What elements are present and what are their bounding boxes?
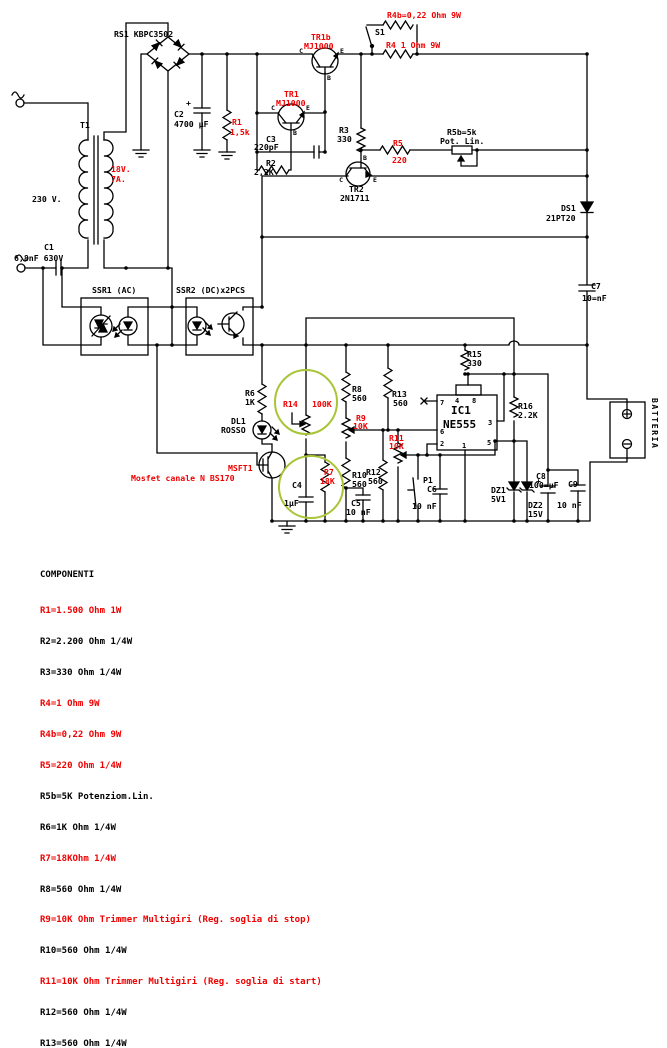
label-pin8: 8 (472, 397, 476, 405)
parts-list-line: R13=560 Ohm 1/4W (40, 1039, 660, 1048)
label-7a: 7A. (111, 174, 126, 184)
label-r6-value: 1K (245, 397, 255, 407)
label-batteria: BATTERIA (650, 398, 660, 449)
label-pin5: 5 (487, 439, 491, 447)
wire-network (24, 23, 627, 526)
label-tr1-type: MJ1000 (276, 98, 306, 108)
label-r16-value: 2.2K (518, 410, 538, 420)
label-ssr1: SSR1 (AC) (92, 285, 136, 295)
parts-list-line: R12=560 Ohm 1/4W (40, 1008, 660, 1018)
label-r13-value: 560 (393, 398, 408, 408)
label-ic1: IC1 (451, 404, 471, 417)
label-c9-value: 10 nF (557, 500, 582, 510)
label-pin1: 1 (462, 442, 466, 450)
label-tr2-type: 2N1711 (340, 193, 370, 203)
label-dz2-value: 15V (528, 509, 543, 519)
label-r9-value: 10K (353, 421, 368, 431)
transformer-t1 (79, 136, 113, 244)
parts-list-line: R11=10K Ohm Trimmer Multigiri (Reg. sogl… (40, 977, 660, 987)
label-r5b-type: Pot. Lin. (440, 136, 484, 146)
zener-dz1 (507, 482, 521, 492)
label-r4: R4 1 Ohm 9W (386, 40, 440, 50)
label-msft1-type: Mosfet canale N BS170 (131, 473, 235, 483)
label-c8-plus: + (536, 476, 541, 486)
label-c8-value: 100=µF (529, 480, 559, 490)
label-tr1-e: E (306, 104, 310, 112)
parts-list-line: R3=330 Ohm 1/4W (40, 668, 660, 678)
label-pin3: 3 (488, 419, 492, 427)
label-c7: C7 (591, 281, 601, 291)
label-r14: R14 (283, 399, 298, 409)
capacitor-c4 (299, 497, 313, 502)
label-r2-value: 2,2K (254, 167, 274, 177)
label-c9: C9 (568, 479, 578, 489)
switch-s1 (371, 45, 374, 48)
label-c1: C1 (44, 242, 54, 252)
resistor-r4b (383, 21, 413, 29)
label-c2-plus: + (186, 98, 191, 108)
components-list-title: COMPONENTI (40, 570, 660, 580)
parts-list-line: R5=220 Ohm 1/4W (40, 761, 660, 771)
circuit-schematic: RS1 KBPC3502 T1 230 V. 18V. 7A. C1 6,8nF… (0, 0, 667, 546)
label-r3-value: 330 (337, 134, 352, 144)
label-r15-value: 330 (467, 358, 482, 368)
transistor-tr1b (312, 48, 338, 74)
label-r11-value: 10K (389, 441, 404, 451)
highlight-circle-r7 (279, 456, 343, 518)
label-pin4: 4 (455, 397, 459, 405)
parts-list-line: R10=560 Ohm 1/4W (40, 946, 660, 956)
label-c6-value: 10 nF (412, 501, 437, 511)
components-list: COMPONENTI R1=1.500 Ohm 1W R2=2.200 Ohm … (40, 549, 660, 1048)
capacitor-c2 (194, 108, 210, 113)
label-tr2-b: B (363, 154, 367, 162)
label-ne555: NE555 (443, 418, 476, 431)
label-r14-value: 100K (312, 399, 332, 409)
resistor-r4 (383, 50, 413, 58)
label-r5-value: 220 (392, 155, 407, 165)
label-r8-value: 560 (352, 393, 367, 403)
transistor-tr2 (346, 162, 371, 186)
label-ds1: DS1 (561, 203, 576, 213)
highlight-circles (275, 370, 343, 518)
parts-list-line: R7=18KOhm 1/4W (40, 854, 660, 864)
parts-list-line: R2=2.200 Ohm 1/4W (40, 637, 660, 647)
parts-list-line: R8=560 Ohm 1/4W (40, 885, 660, 895)
label-c2: C2 (174, 109, 184, 119)
label-tr1b-e: E (340, 47, 344, 55)
parts-list-line: R5b=5K Potenziom.Lin. (40, 792, 660, 802)
parts-list-line: R9=10K Ohm Trimmer Multigiri (Reg. sogli… (40, 915, 660, 925)
label-c4-value: 1µF (284, 498, 299, 508)
parts-list-line: R6=1K Ohm 1/4W (40, 823, 660, 833)
label-r5: R5 (393, 138, 403, 148)
label-r1: R1 (232, 117, 242, 127)
label-ds1-type: 21PT20 (546, 213, 576, 223)
label-pin2: 2 (440, 440, 444, 448)
label-c3-value: 220pF (254, 142, 279, 152)
label-c7-value: 10=nF (582, 293, 607, 303)
bridge-rectifier-rs1 (147, 37, 189, 71)
label-tr2-e: E (373, 176, 377, 184)
led-dl1 (253, 421, 279, 440)
label-r10-value: 560 (352, 479, 367, 489)
parts-list-line: R4b=0,22 Ohm 9W (40, 730, 660, 740)
label-c4: C4 (292, 480, 302, 490)
label-r1-value: 1,5k (230, 127, 250, 137)
potentiometer-r5b (452, 146, 472, 161)
resistor-r8 (342, 372, 350, 402)
label-ssr2: SSR2 (DC)x2PCS (176, 285, 245, 295)
label-r4b: R4b=0,22 Ohm 9W (387, 10, 461, 20)
label-msft1: MSFT1 (228, 463, 253, 473)
label-c5-value: 10 nF (346, 507, 371, 517)
label-t1: T1 (80, 120, 90, 130)
label-tr1b-b: B (327, 74, 331, 82)
label-pin7: 7 (440, 399, 444, 407)
ac-plug-top (12, 92, 24, 107)
label-18v: 18V. (111, 164, 131, 174)
capacitor-c3 (314, 146, 319, 158)
label-tr1b-type: MJ1000 (304, 41, 334, 51)
parts-list-line: R1=1.500 Ohm 1W (40, 606, 660, 616)
label-r12-value: 560 (368, 476, 383, 486)
schematic-page: RS1 KBPC3502 T1 230 V. 18V. 7A. C1 6,8nF… (0, 0, 667, 1048)
resistor-r16 (510, 397, 518, 417)
label-r7-value: 18K (320, 476, 335, 486)
resistor-r13 (384, 368, 392, 398)
label-c6: C6 (427, 484, 437, 494)
label-tr1b-c: C (299, 47, 303, 55)
label-pin6: 6 (440, 428, 444, 436)
diode-ds1 (581, 202, 593, 213)
resistor-r6 (258, 384, 266, 414)
parts-list-line: R4=1 Ohm 9W (40, 699, 660, 709)
label-tr1-c: C (271, 104, 275, 112)
schematic-labels: RS1 KBPC3502 T1 230 V. 18V. 7A. C1 6,8nF… (14, 10, 660, 519)
label-tr2-c: C (339, 176, 343, 184)
label-dl1-color: ROSSO (221, 425, 246, 435)
label-c2-value: 4700 µF (174, 119, 209, 129)
label-c1-value: 6,8nF 630V (14, 253, 63, 263)
label-230v: 230 V. (32, 194, 62, 204)
label-s1: S1 (375, 27, 385, 37)
label-tr1-b: B (293, 129, 297, 137)
label-dz1-value: 5V1 (491, 494, 506, 504)
label-rs1: RS1 KBPC3502 (114, 29, 173, 39)
